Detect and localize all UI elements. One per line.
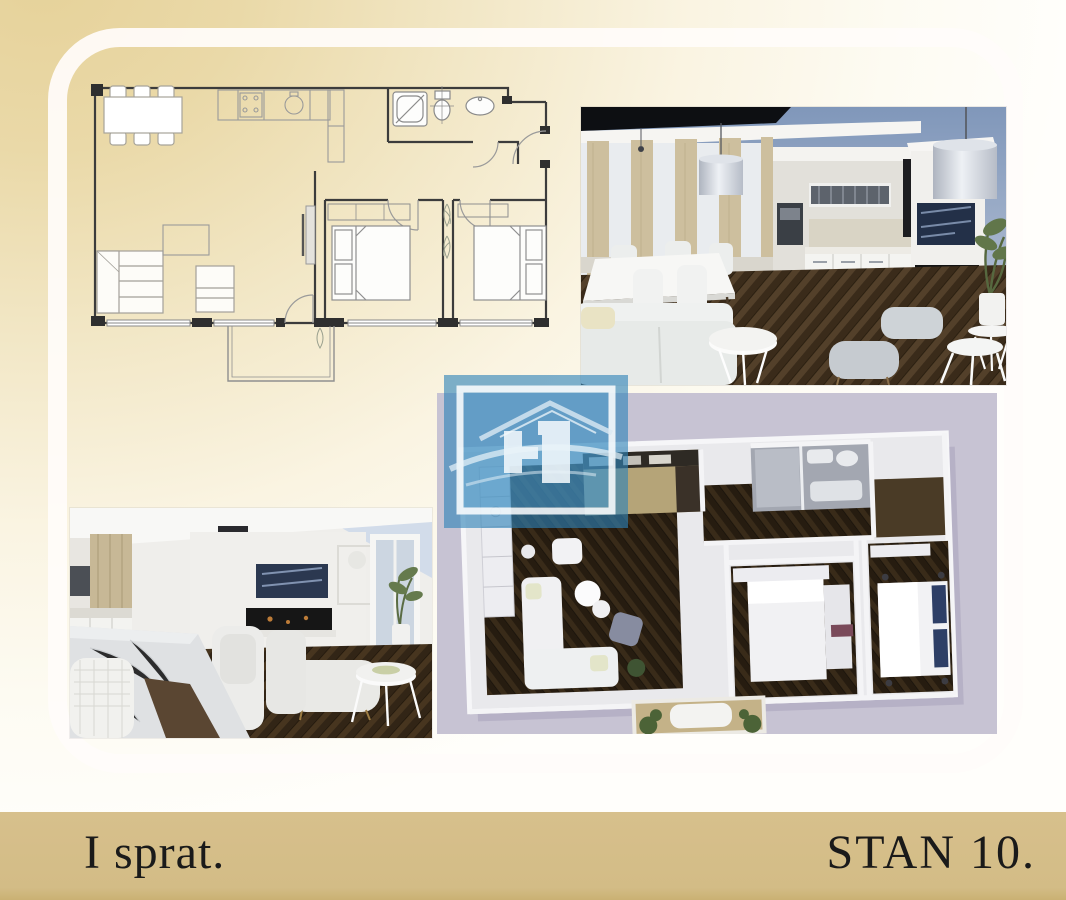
dining-table [104, 86, 182, 145]
floor-plan-2d [88, 76, 560, 394]
pillow [581, 307, 615, 329]
balcony-door [285, 295, 313, 323]
balcony-outline [228, 326, 334, 381]
dining-living-render [70, 508, 432, 738]
toilet-icon [435, 91, 450, 99]
balcony [633, 697, 764, 734]
upper-cabinet-glass [811, 186, 889, 204]
sofa [97, 251, 163, 313]
bedroom-2-bed [458, 204, 546, 300]
bedroom-1-bed [328, 204, 410, 300]
door-arcs [388, 131, 546, 230]
kitchen-counter [218, 90, 344, 162]
armchair [196, 266, 234, 312]
bedroom-1 [731, 562, 858, 698]
pouf [829, 341, 899, 379]
tv-cabinet [303, 206, 315, 264]
watermark-logo [444, 375, 628, 528]
footer-bar: I sprat. STAN 10. [0, 812, 1066, 900]
living-kitchen-render [581, 107, 1006, 385]
entry-floor [872, 477, 948, 538]
ottoman [881, 307, 943, 339]
unit-label: STAN 10. [827, 829, 1037, 883]
coffee-table [163, 225, 209, 255]
bathroom-fixtures [393, 86, 494, 126]
bathroom [751, 442, 873, 512]
floor-label: I sprat. [84, 829, 225, 883]
fireplace-icon [246, 608, 332, 630]
wicker-chair [70, 658, 134, 738]
bedroom-2 [868, 541, 953, 694]
presentation-slide: { "slide": { "footer": { "left_label": "… [0, 0, 1066, 900]
